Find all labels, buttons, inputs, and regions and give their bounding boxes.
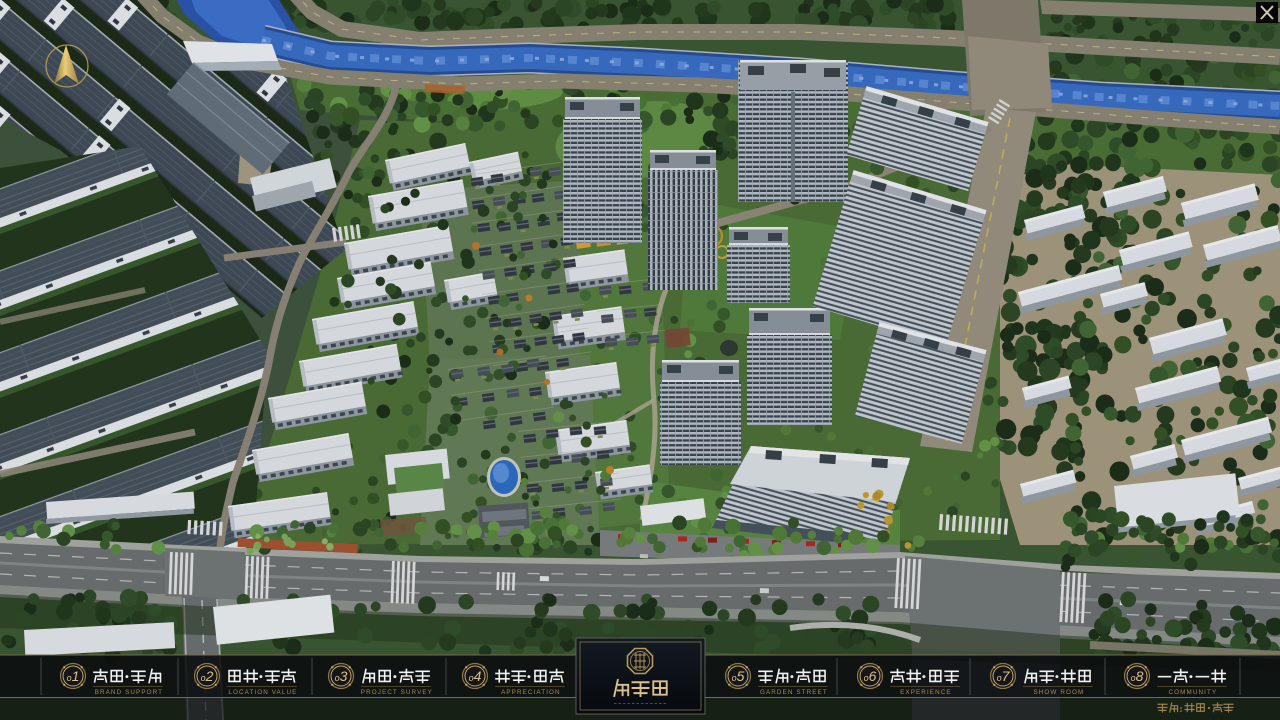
svg-text:EXPERIENCE: EXPERIENCE xyxy=(900,689,952,696)
svg-text:PROJECT SURVEY: PROJECT SURVEY xyxy=(361,689,433,696)
svg-text:APPRECIATION: APPRECIATION xyxy=(501,689,561,696)
svg-text:GARDEN STREET: GARDEN STREET xyxy=(760,689,828,696)
svg-text:LOCATION VALUE: LOCATION VALUE xyxy=(228,689,297,696)
svg-text:BRAND SUPPORT: BRAND SUPPORT xyxy=(95,689,163,696)
svg-text:SHOW ROOM: SHOW ROOM xyxy=(1033,689,1084,696)
svg-text:COMMUNITY: COMMUNITY xyxy=(1169,689,1218,696)
